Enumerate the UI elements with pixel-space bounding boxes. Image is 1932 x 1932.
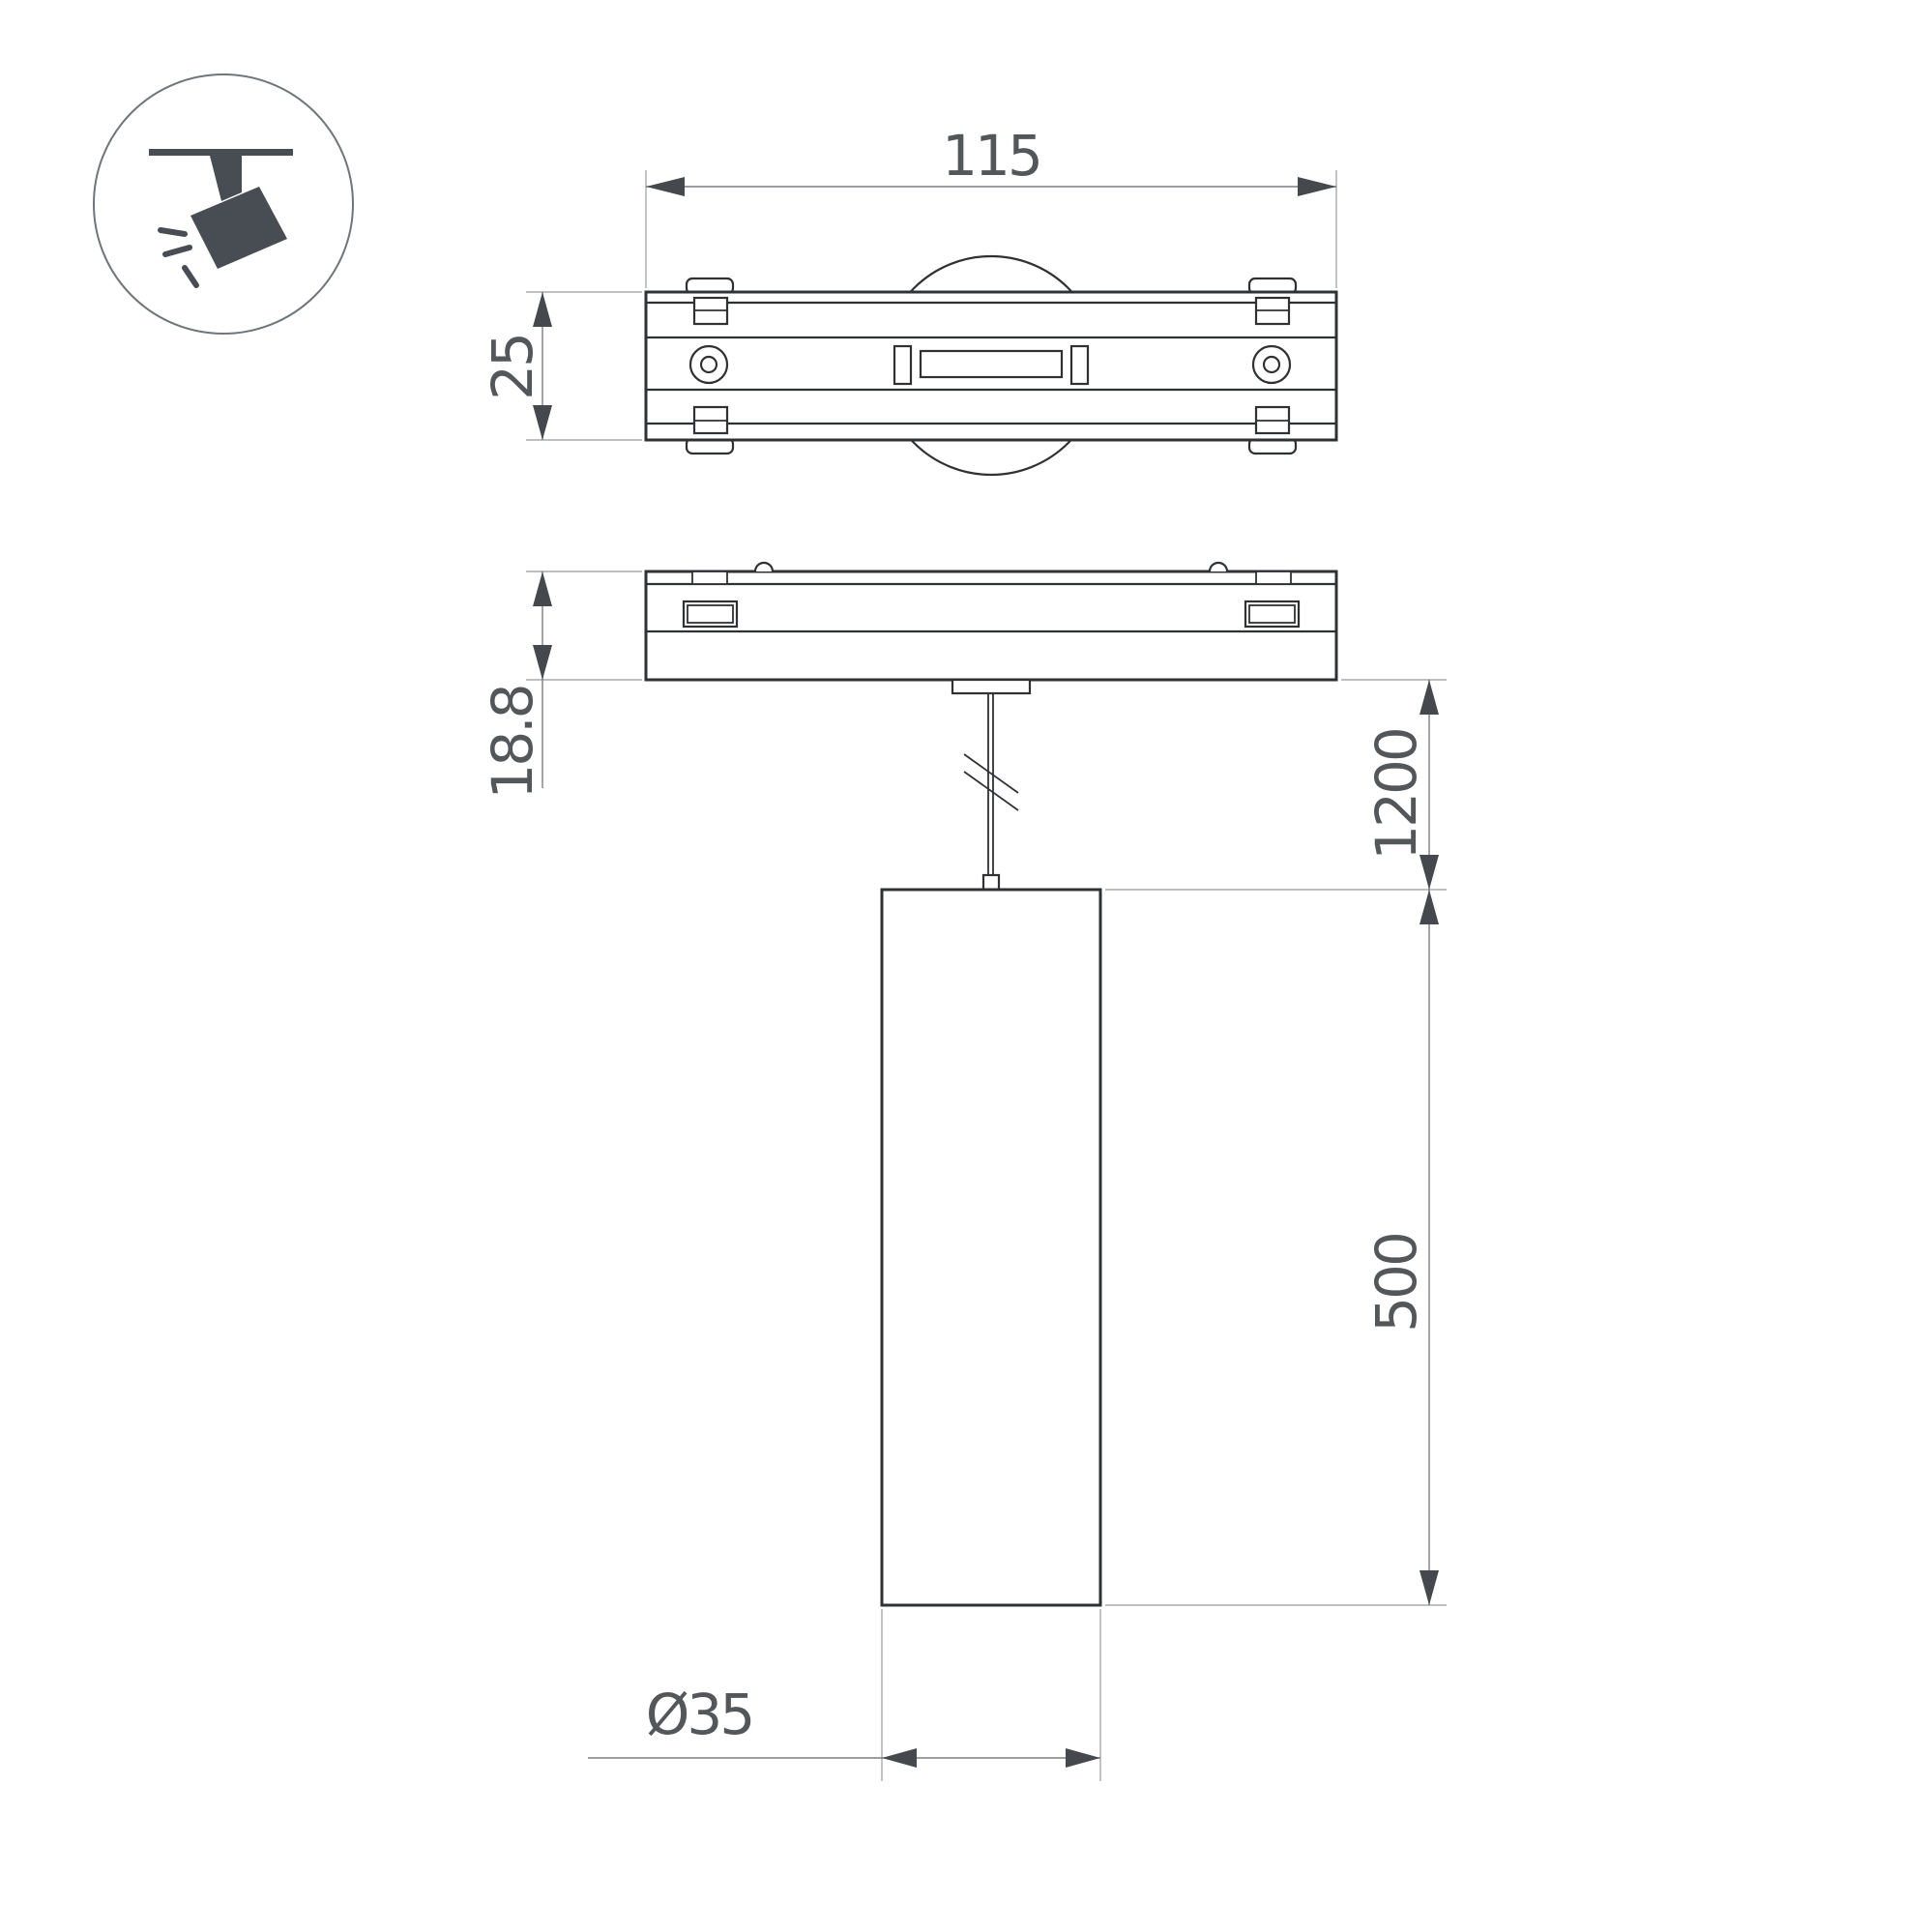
dim-label-adapter-height: 18.8 (480, 686, 545, 799)
dimension-lamp-diameter: Ø35 (588, 1609, 1100, 1781)
technical-drawing-page: 115 25 (0, 0, 1932, 1932)
dimension-suspension-length: 1200 (1105, 680, 1447, 890)
lamp-cylinder (882, 890, 1100, 1605)
dimension-track-depth: 25 (480, 292, 642, 440)
cable-break-slash (964, 772, 1018, 810)
track-spotlight-icon (94, 74, 353, 334)
side-view-adapter (646, 563, 1336, 890)
suspension-cable (964, 693, 1018, 890)
suspension-bracket (952, 680, 1030, 693)
pendant-lamp-body (882, 890, 1100, 1605)
pendant-track-light-dimension-drawing: 115 25 (0, 0, 1932, 1932)
dim-label-lamp-height: 500 (1363, 1234, 1429, 1332)
dim-label-track-width: 115 (942, 123, 1040, 189)
dimension-lamp-height: 500 (1105, 890, 1447, 1605)
dim-label-track-depth: 25 (480, 335, 545, 400)
cable-grip (983, 875, 999, 890)
adapter-body-side (646, 571, 1336, 680)
icon-ceiling-track (149, 149, 293, 156)
cable-break-slash (964, 754, 1018, 793)
top-view-adapter (646, 256, 1336, 475)
dimension-adapter-height: 18.8 (480, 571, 642, 800)
dim-label-lamp-diameter: Ø35 (646, 1682, 752, 1747)
dim-label-suspension-length: 1200 (1363, 729, 1429, 861)
dimension-track-width: 115 (646, 123, 1336, 288)
